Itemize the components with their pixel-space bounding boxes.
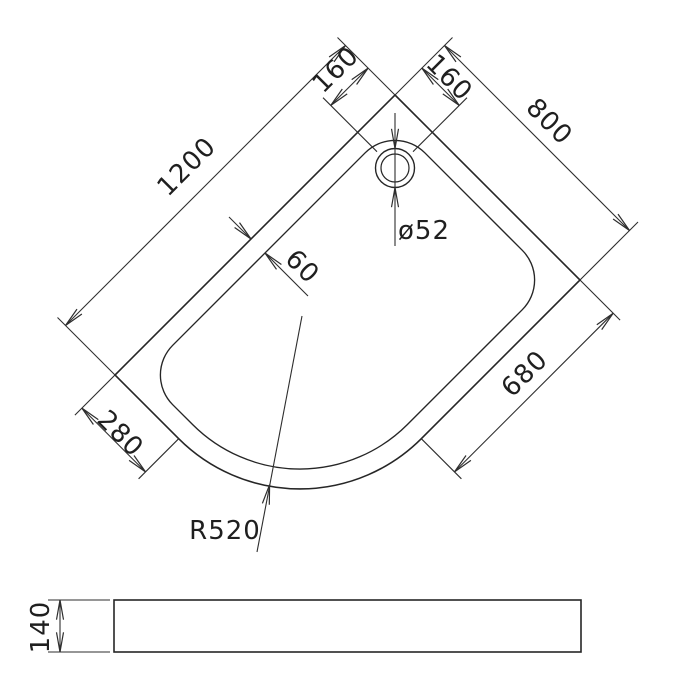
tray-inner-outline [160, 140, 534, 469]
dim-label-drain-diameter: ø52 [398, 218, 450, 244]
side-profile-rect [114, 600, 581, 652]
technical-drawing-svg [0, 0, 684, 683]
arrowhead [262, 485, 269, 505]
dim-label-tray-height: 140 [28, 601, 54, 654]
dim-label-corner-radius: R520 [189, 518, 261, 544]
drawing-canvas: 1200 800 160 160 ø52 60 680 280 R520 140 [0, 0, 684, 683]
